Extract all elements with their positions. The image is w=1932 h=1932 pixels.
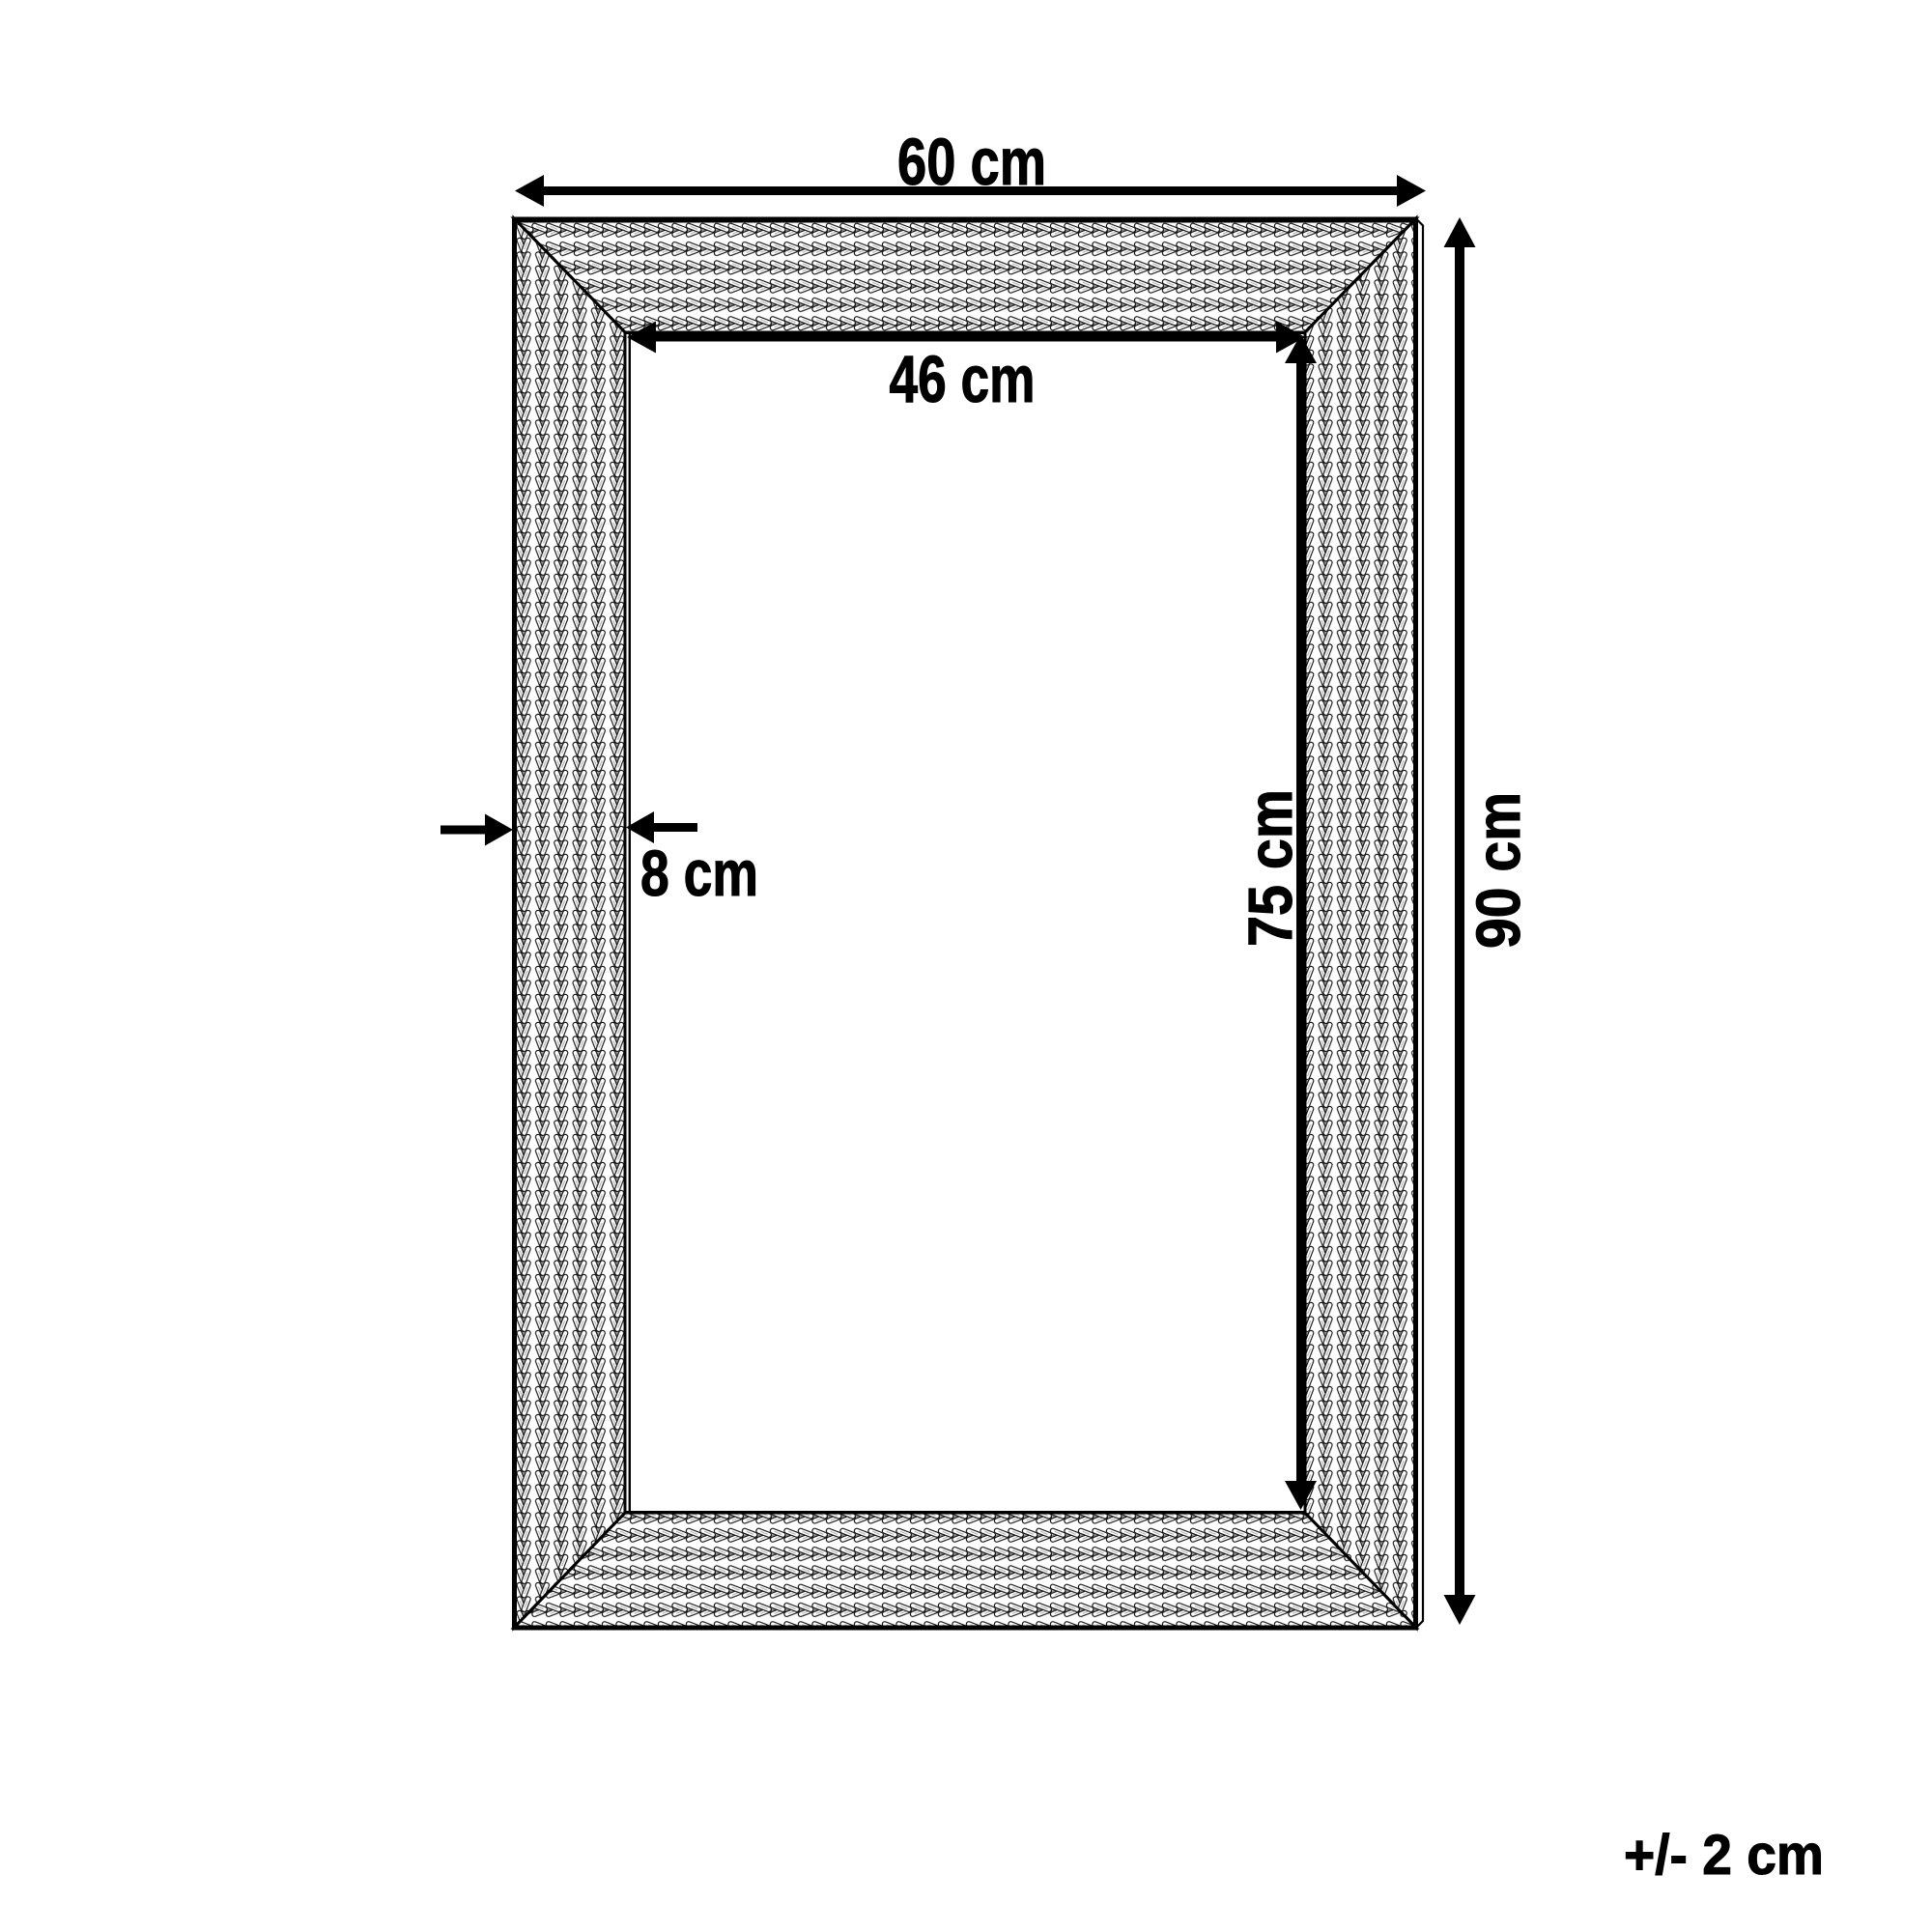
svg-text:8 cm: 8 cm [640,838,758,910]
svg-text:+/- 2 cm: +/- 2 cm [1624,1824,1824,1887]
svg-text:75 cm: 75 cm [1236,789,1305,947]
svg-text:90 cm: 90 cm [1463,792,1533,949]
svg-text:46 cm: 46 cm [890,342,1036,416]
svg-text:60 cm: 60 cm [897,125,1046,199]
